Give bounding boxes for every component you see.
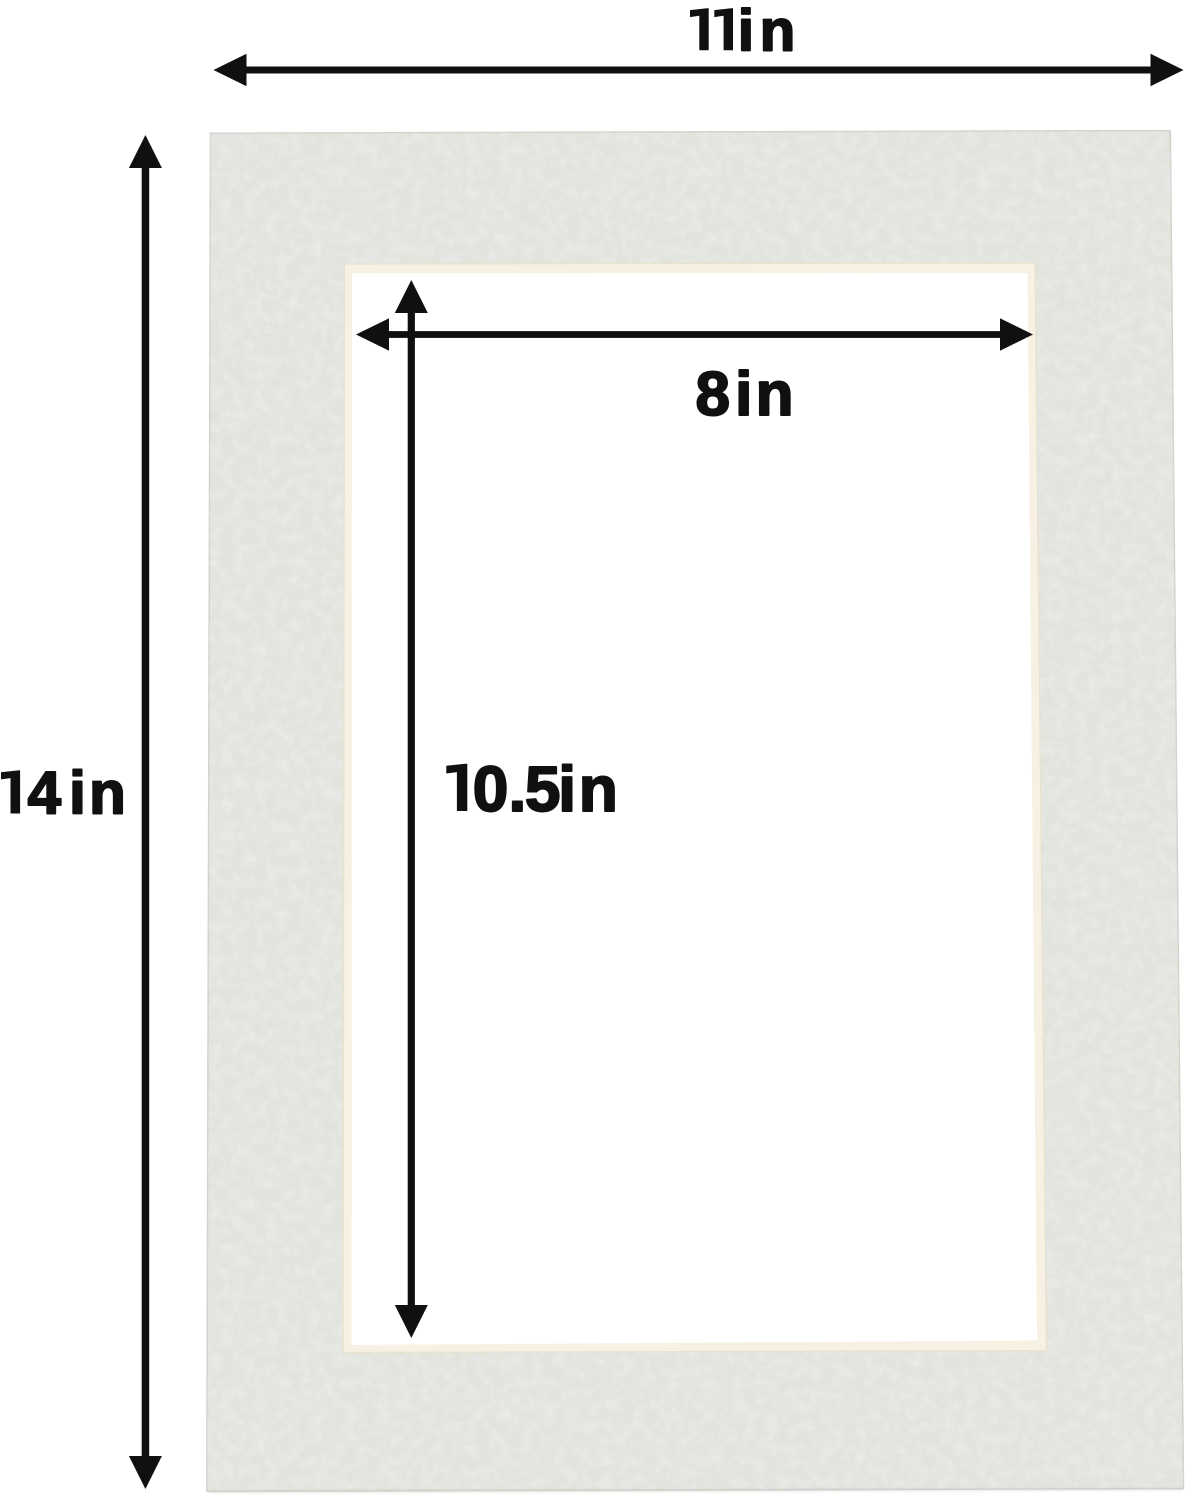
svg-text:n: n bbox=[89, 760, 126, 827]
svg-text:n: n bbox=[760, 0, 795, 63]
svg-text:0: 0 bbox=[473, 753, 509, 825]
svg-text:i: i bbox=[558, 753, 576, 825]
svg-text:n: n bbox=[756, 360, 794, 429]
svg-text:i: i bbox=[735, 360, 752, 429]
svg-text:4: 4 bbox=[28, 760, 62, 827]
svg-text:5: 5 bbox=[525, 753, 561, 825]
svg-text:8: 8 bbox=[696, 360, 730, 429]
svg-text:n: n bbox=[579, 753, 618, 825]
svg-text:.: . bbox=[509, 753, 527, 825]
svg-text:i: i bbox=[738, 0, 754, 63]
svg-text:i: i bbox=[69, 760, 86, 827]
